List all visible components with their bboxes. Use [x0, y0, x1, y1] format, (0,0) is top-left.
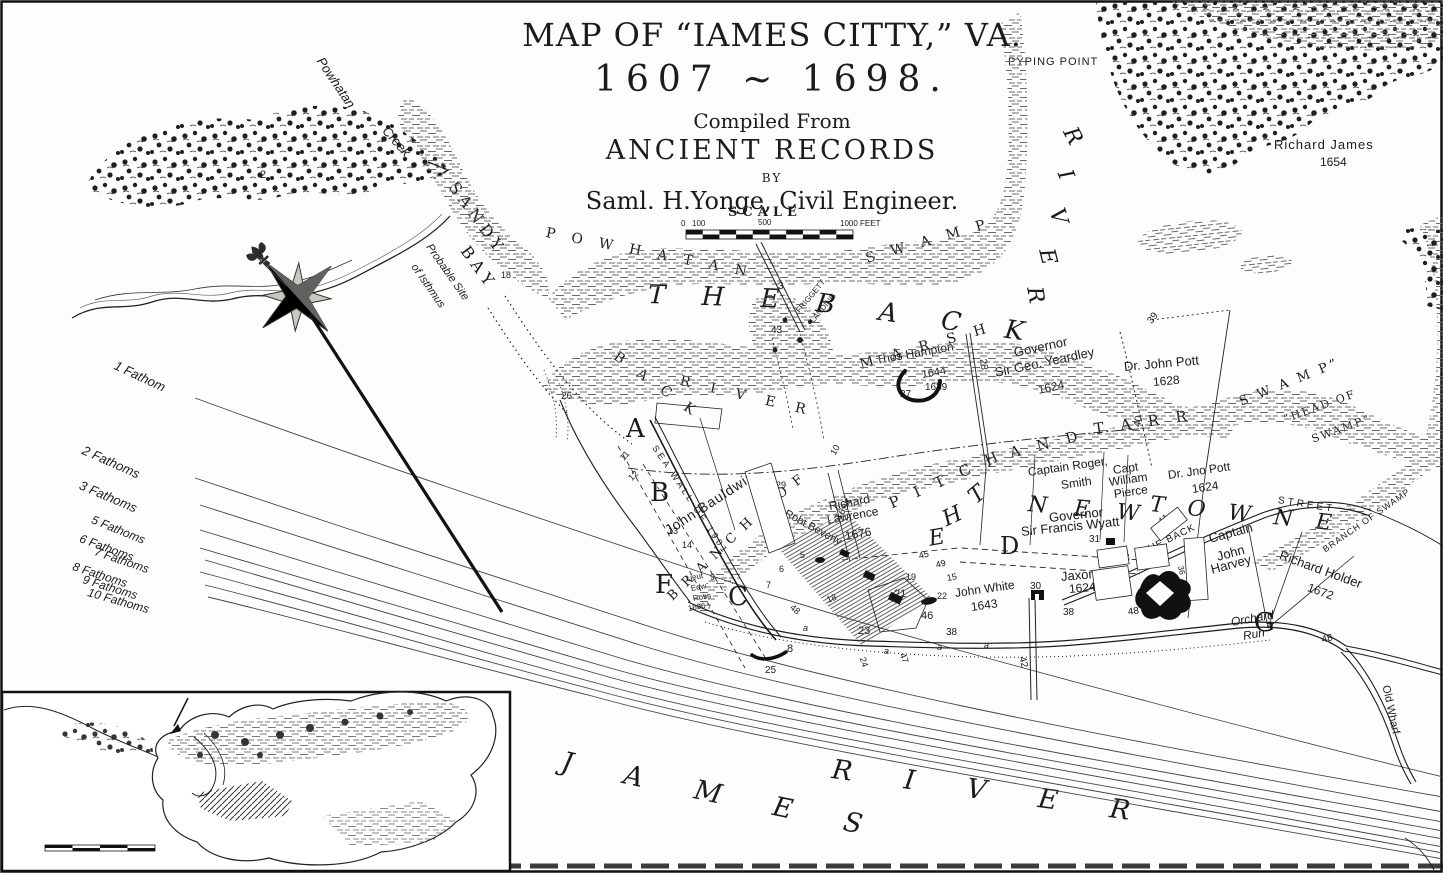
inset-sketch [2, 692, 510, 871]
statehouse-icon [1031, 590, 1044, 600]
map-subtitle: BY [522, 171, 1022, 185]
island-shore [560, 400, 690, 602]
compass-rose-icon [216, 214, 502, 612]
scale-bar [686, 230, 853, 239]
back-river-marsh [542, 339, 1236, 438]
map-date-range: 1607 ~ 1698. [522, 59, 1022, 100]
map-author: Saml. H.Yonge, Civil Engineer. [522, 187, 1022, 215]
map-subtitle: Compiled From [522, 109, 1022, 133]
map-subtitle: ANCIENT RECORDS [522, 135, 1022, 166]
fort-icon [1135, 571, 1191, 620]
map-title: MAP OF “IAMES CITTY,” VA. [522, 16, 1022, 54]
powhatan-creek-woods [72, 106, 450, 318]
church-icon [1106, 538, 1115, 545]
inset-scale-bar [45, 845, 155, 851]
hook-mark [752, 652, 786, 659]
map-title-block: MAP OF “IAMES CITTY,” VA. 1607 ~ 1698. C… [522, 16, 1022, 215]
map-page: { "colors":{"paper":"#fdfdfb","ink":"#1b… [0, 0, 1443, 873]
